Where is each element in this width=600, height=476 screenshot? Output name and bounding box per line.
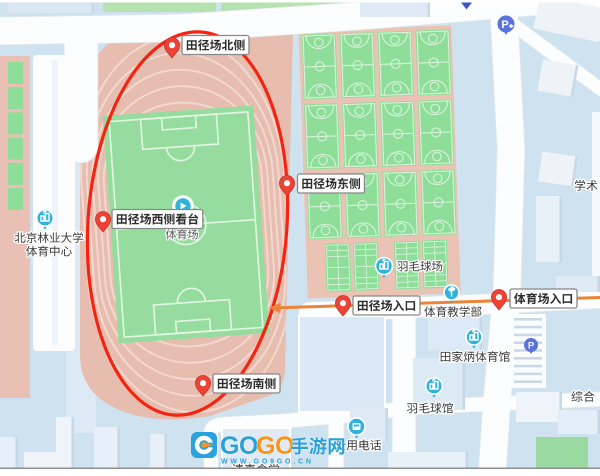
svg-text:P: P bbox=[501, 19, 508, 31]
svg-text:WWW.GO9GO.CN: WWW.GO9GO.CN bbox=[221, 459, 314, 466]
svg-text:P: P bbox=[528, 341, 535, 352]
svg-text:GO: GO bbox=[256, 432, 294, 460]
svg-text:GO: GO bbox=[220, 432, 258, 460]
